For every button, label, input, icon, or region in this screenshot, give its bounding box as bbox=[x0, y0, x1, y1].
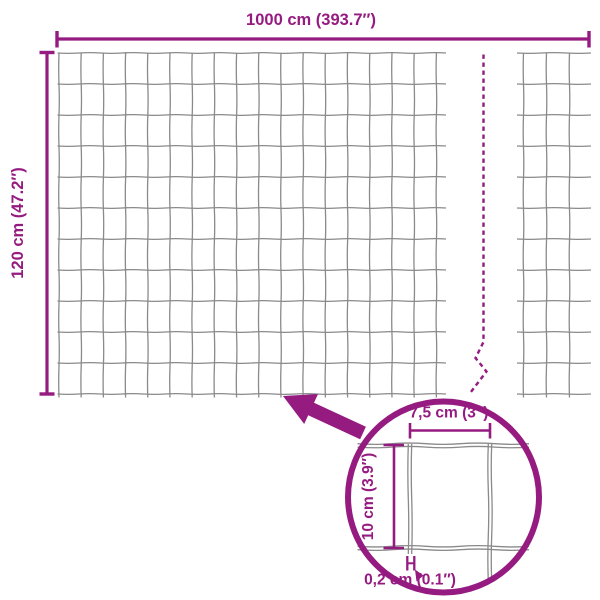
mesh-wire bbox=[148, 53, 149, 398]
mesh-wire bbox=[392, 53, 393, 398]
mesh-wire bbox=[546, 53, 547, 398]
mesh-wire bbox=[58, 363, 447, 364]
mesh-wire bbox=[58, 301, 447, 302]
mesh-wire bbox=[517, 208, 591, 209]
mesh-wire bbox=[58, 146, 447, 147]
mesh-wire bbox=[59, 53, 60, 398]
mesh-wire bbox=[411, 444, 412, 554]
mesh-wire bbox=[347, 53, 348, 398]
mesh-wire bbox=[58, 332, 447, 333]
mesh-wire bbox=[517, 332, 591, 333]
dimension-diagram: 1000 cm (393.7″) 120 cm (47.2″) 7,5 cm (… bbox=[0, 0, 600, 600]
mesh-wire bbox=[488, 444, 489, 582]
mesh-wire bbox=[517, 146, 591, 147]
wire-thickness-label: 0,2 cm (0.1″) bbox=[364, 572, 456, 589]
dimension-total-width: 1000 cm (393.7″) bbox=[57, 11, 589, 48]
mesh-wire bbox=[58, 115, 447, 116]
mesh-wire bbox=[58, 270, 447, 271]
dimension-total-height: 120 cm (47.2″) bbox=[9, 53, 55, 395]
mesh-detail-wires bbox=[358, 443, 530, 581]
mesh-wire bbox=[325, 53, 326, 398]
mesh-wire bbox=[523, 53, 524, 398]
mesh-wire bbox=[358, 546, 530, 547]
mesh-wire bbox=[281, 53, 282, 398]
mesh-wire bbox=[408, 444, 409, 554]
cell-height-label: 10 cm (3.9″) bbox=[360, 453, 377, 541]
mesh-wire bbox=[517, 115, 591, 116]
mesh-wire bbox=[517, 53, 591, 54]
dimension-cell-width: 7,5 cm (3″) bbox=[410, 405, 490, 439]
mesh-wire bbox=[517, 239, 591, 240]
mesh-wire bbox=[491, 444, 492, 582]
mesh-wire bbox=[358, 446, 530, 447]
mesh-wire bbox=[517, 363, 591, 364]
mesh-wire bbox=[259, 53, 260, 398]
mesh-wire bbox=[370, 53, 371, 398]
mesh-wire bbox=[81, 53, 82, 398]
mesh-wire bbox=[414, 53, 415, 398]
mesh-wire bbox=[192, 53, 193, 398]
total-height-label: 120 cm (47.2″) bbox=[9, 167, 27, 279]
wire-gauge-marker-icon bbox=[407, 556, 414, 571]
mesh-wire bbox=[517, 84, 591, 85]
mesh-wire bbox=[58, 177, 447, 178]
mesh-wire bbox=[58, 394, 447, 395]
mesh-wire bbox=[58, 239, 447, 240]
cell-width-label: 7,5 cm (3″) bbox=[410, 405, 489, 422]
mesh-wire bbox=[58, 53, 447, 54]
mesh-wire bbox=[358, 443, 530, 444]
mesh-wire bbox=[517, 301, 591, 302]
dimension-cell-height: 10 cm (3.9″) bbox=[360, 445, 404, 548]
mesh-wire bbox=[125, 53, 126, 398]
diagram-canvas: 1000 cm (393.7″) 120 cm (47.2″) 7,5 cm (… bbox=[0, 0, 600, 600]
mesh-wire bbox=[58, 208, 447, 209]
mesh-wire bbox=[358, 549, 530, 550]
mesh-panel-left bbox=[58, 53, 447, 398]
zoom-arrow-icon bbox=[283, 394, 366, 439]
total-width-label: 1000 cm (393.7″) bbox=[246, 11, 376, 29]
mesh-wire bbox=[58, 84, 447, 85]
mesh-break-dashed-line bbox=[471, 55, 487, 393]
mesh-wire bbox=[517, 394, 591, 395]
mesh-wire bbox=[517, 270, 591, 271]
mesh-wire bbox=[569, 53, 570, 398]
mesh-panel-right bbox=[517, 53, 591, 398]
mesh-wire bbox=[303, 53, 304, 398]
mesh-wire bbox=[103, 53, 104, 398]
mesh-wire bbox=[236, 53, 237, 398]
mesh-wire bbox=[170, 53, 171, 398]
mesh-wire bbox=[436, 53, 437, 398]
mesh-wire bbox=[214, 53, 215, 398]
mesh-wire bbox=[517, 177, 591, 178]
